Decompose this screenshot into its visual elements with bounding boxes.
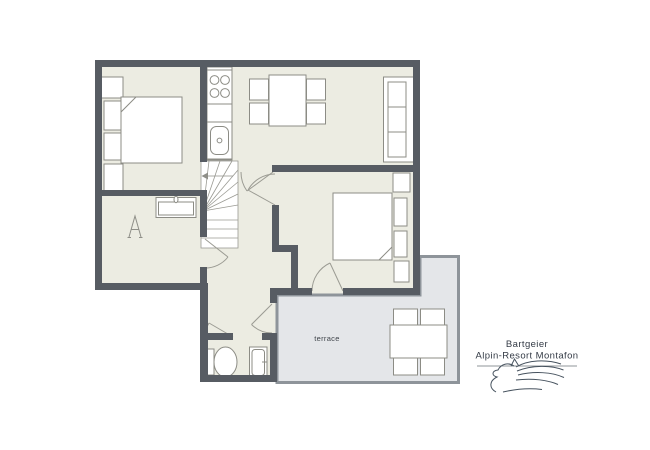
wall-exterior-top <box>95 60 420 67</box>
kitchen-counter <box>207 67 232 160</box>
dining-set <box>250 75 326 126</box>
wall-living-bedroom2 <box>272 165 420 172</box>
wall-bedroom2-bottom-right <box>343 288 420 295</box>
wall-wc-top-left <box>200 333 233 340</box>
wall-wc-top-right <box>262 333 277 340</box>
wall-bedroom2-left-upper <box>272 205 279 252</box>
pillow <box>104 101 121 130</box>
wall-wc-bottom <box>200 375 277 382</box>
burner-icon <box>210 89 219 98</box>
dining-chair <box>307 103 326 124</box>
toilet-bowl <box>214 347 237 377</box>
sofa-seat <box>388 82 406 157</box>
sofa <box>384 77 414 162</box>
floor-plan-canvas: terrace <box>0 0 650 450</box>
dining-chair <box>250 103 269 124</box>
pillow <box>394 231 407 257</box>
wall-bathroom-right-upper <box>200 190 207 237</box>
floor-plan-page: terrace <box>0 0 650 450</box>
pillow <box>104 133 121 160</box>
nightstand <box>394 261 409 282</box>
burner-icon <box>221 89 230 98</box>
burner-icon <box>210 76 219 85</box>
drain-icon <box>217 138 222 143</box>
burner-icon <box>221 76 230 85</box>
double-bed <box>333 193 392 260</box>
double-bed <box>121 97 182 163</box>
wall-bathroom-bottom <box>95 283 208 290</box>
dining-chair <box>250 79 269 100</box>
wall-bedroom1-bathroom <box>95 190 205 196</box>
bathroom-sink-basin <box>159 202 194 215</box>
wardrobe <box>100 77 123 98</box>
nightstand <box>393 173 410 192</box>
terrace-label: terrace <box>314 334 339 343</box>
wall-bedroom2-left-lower <box>291 245 298 295</box>
wall-bedroom1-kitchen <box>200 60 207 162</box>
dining-chair <box>307 79 326 100</box>
wall-exterior-left <box>95 60 102 290</box>
resort-name: Bartgeier <box>506 339 548 350</box>
wall-wc-right-lower <box>270 333 277 382</box>
faucet-icon <box>174 196 178 202</box>
wall-bathroom-right-lower <box>200 267 207 287</box>
stove <box>207 70 232 104</box>
wall-exterior-right <box>413 60 420 295</box>
dining-table <box>269 75 306 126</box>
bathroom-fixtures <box>156 196 196 217</box>
resort-subtitle: Alpin-Resort Montafon <box>476 351 579 362</box>
terrace-table <box>390 325 447 358</box>
nightstand <box>104 164 123 191</box>
wall-hall-left <box>200 283 208 382</box>
pillow <box>394 198 407 226</box>
